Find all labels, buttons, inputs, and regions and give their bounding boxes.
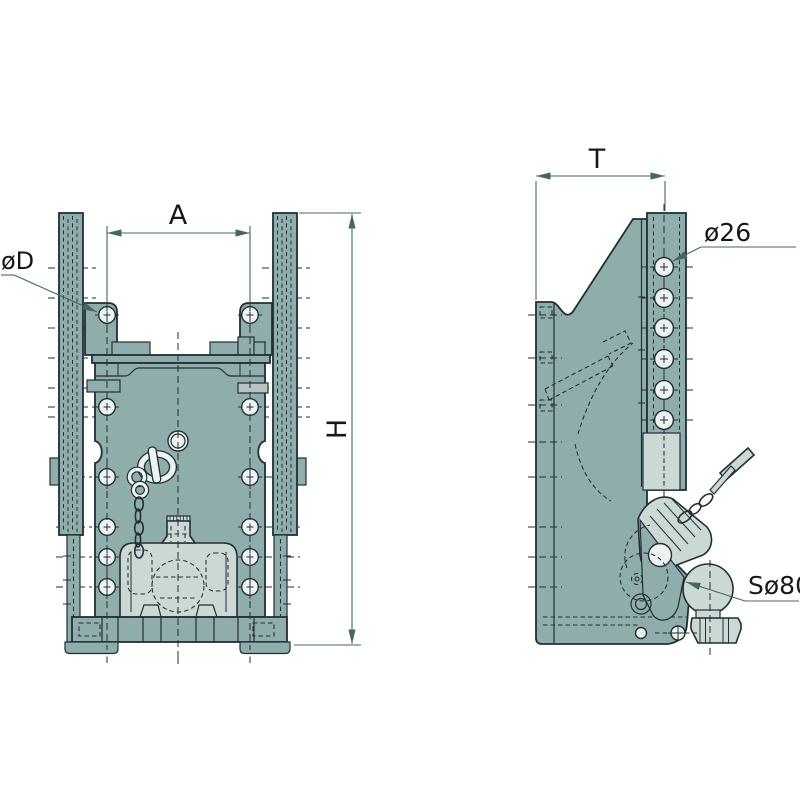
right-adjustment-rail bbox=[273, 213, 306, 642]
dim-label-S80: Sø80 bbox=[748, 571, 800, 600]
hitch-ball bbox=[683, 560, 741, 656]
pivot-pin bbox=[649, 544, 672, 567]
dimension-A: A bbox=[107, 200, 250, 302]
label-hole-diameter-side: ø26 bbox=[673, 218, 796, 261]
side-view: T ø26 Sø80 bbox=[528, 144, 800, 656]
dim-label-A: A bbox=[169, 200, 188, 231]
dim-label-H: H bbox=[322, 419, 353, 439]
left-adjustment-rail bbox=[50, 213, 83, 642]
upper-mounting-bar bbox=[92, 337, 270, 363]
dim-label-oD: øD bbox=[1, 247, 34, 275]
technical-drawing-canvas: A H øD bbox=[0, 0, 800, 800]
front-view: A H øD bbox=[1, 200, 361, 664]
dim-label-T: T bbox=[588, 144, 606, 175]
rail-clamp-block bbox=[643, 433, 680, 490]
dim-label-o26: ø26 bbox=[704, 218, 751, 247]
side-rail bbox=[642, 204, 693, 498]
dimension-H: H bbox=[294, 213, 361, 645]
